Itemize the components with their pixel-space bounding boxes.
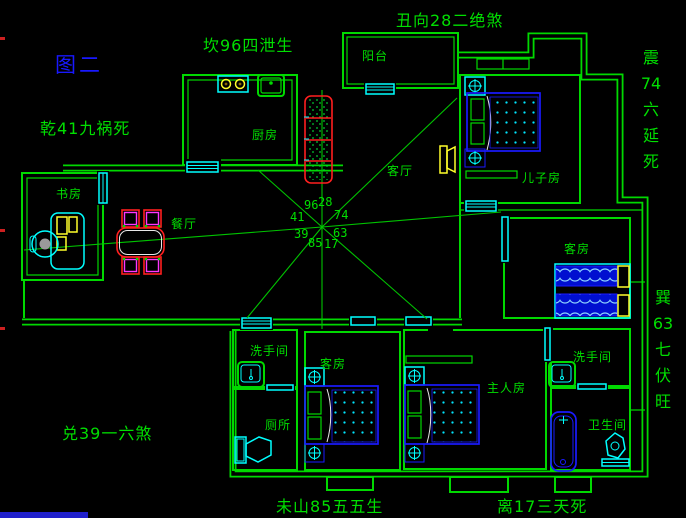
annotation-bottom-center-right: 离17三天死 <box>497 493 587 517</box>
guest-bed <box>305 368 378 462</box>
room-label-sons-room: 儿子房 <box>522 169 561 186</box>
room-label-bathroom: 卫生间 <box>588 416 627 433</box>
guest-twin-beds <box>555 264 630 318</box>
sons-room-furniture <box>465 59 540 178</box>
nightstand <box>405 367 424 385</box>
nightstand <box>305 444 324 462</box>
annotation-top-center: 丑向28二绝煞 <box>396 7 503 31</box>
cad-floorplan-canvas[interactable]: 图二 坎96四泄生 丑向28二绝煞 乾41九祸死 兑39一六煞 未山85五五生 … <box>0 0 686 518</box>
room-label-living: 客厅 <box>387 162 413 179</box>
compass-number-wsw: 39 <box>294 227 308 241</box>
chair <box>122 257 139 274</box>
study-chair <box>30 231 58 257</box>
screen-artifacts <box>0 37 88 518</box>
room-label-balcony: 阳台 <box>362 47 388 64</box>
toilet-symbol <box>235 437 271 463</box>
annotation-top-left: 坎96四泄生 <box>203 32 293 56</box>
room-label-guest-mid: 客房 <box>564 240 590 257</box>
toilet-symbol <box>602 433 629 466</box>
annotation-bottom-left: 兑39一六煞 <box>62 420 152 444</box>
annotation-right-lower: 巽 63 七 伏 旺 <box>650 285 676 415</box>
compass-number-ene: 74 <box>334 208 348 222</box>
chair <box>144 210 161 227</box>
compass-number-sse: 17 <box>324 237 338 251</box>
compass-number-ssw: 85 <box>308 236 322 250</box>
stove-symbol <box>218 76 248 92</box>
nightstand <box>405 444 424 462</box>
master-bed <box>405 356 479 462</box>
kitchen-sink-symbol <box>258 75 284 96</box>
room-label-master: 主人房 <box>487 379 526 396</box>
compass-number-nne: 28 <box>318 195 332 209</box>
chair <box>144 257 161 274</box>
room-label-kitchen: 厨房 <box>252 126 278 143</box>
room-label-toilet: 厕所 <box>265 416 291 433</box>
compass-number-wnw: 41 <box>290 210 304 224</box>
annotation-bottom-center-left: 未山85五五生 <box>276 493 383 517</box>
study-desk <box>51 213 84 269</box>
compass-number-nnw: 96 <box>304 198 318 212</box>
annotation-right-upper: 震 74 六 延 死 <box>638 45 664 175</box>
room-label-washroom-left: 洗手间 <box>250 342 289 359</box>
tv-symbol <box>440 146 455 173</box>
annotation-left: 乾41九祸死 <box>40 115 130 139</box>
chair <box>122 210 139 227</box>
sink-symbol <box>238 362 264 387</box>
room-label-washroom-right: 洗手间 <box>573 348 612 365</box>
window-edge-bar <box>0 512 88 518</box>
bathtub-symbol <box>551 412 576 471</box>
room-label-study: 书房 <box>56 185 82 202</box>
figure-title: 图二 <box>55 49 103 79</box>
room-label-guest-bottom: 客房 <box>320 355 346 372</box>
shelf <box>406 356 472 363</box>
sink-symbol <box>549 362 575 387</box>
shelf <box>466 171 517 178</box>
room-label-dining: 餐厅 <box>171 215 197 232</box>
plant-screen <box>304 96 332 183</box>
bed-symbol <box>467 93 540 151</box>
